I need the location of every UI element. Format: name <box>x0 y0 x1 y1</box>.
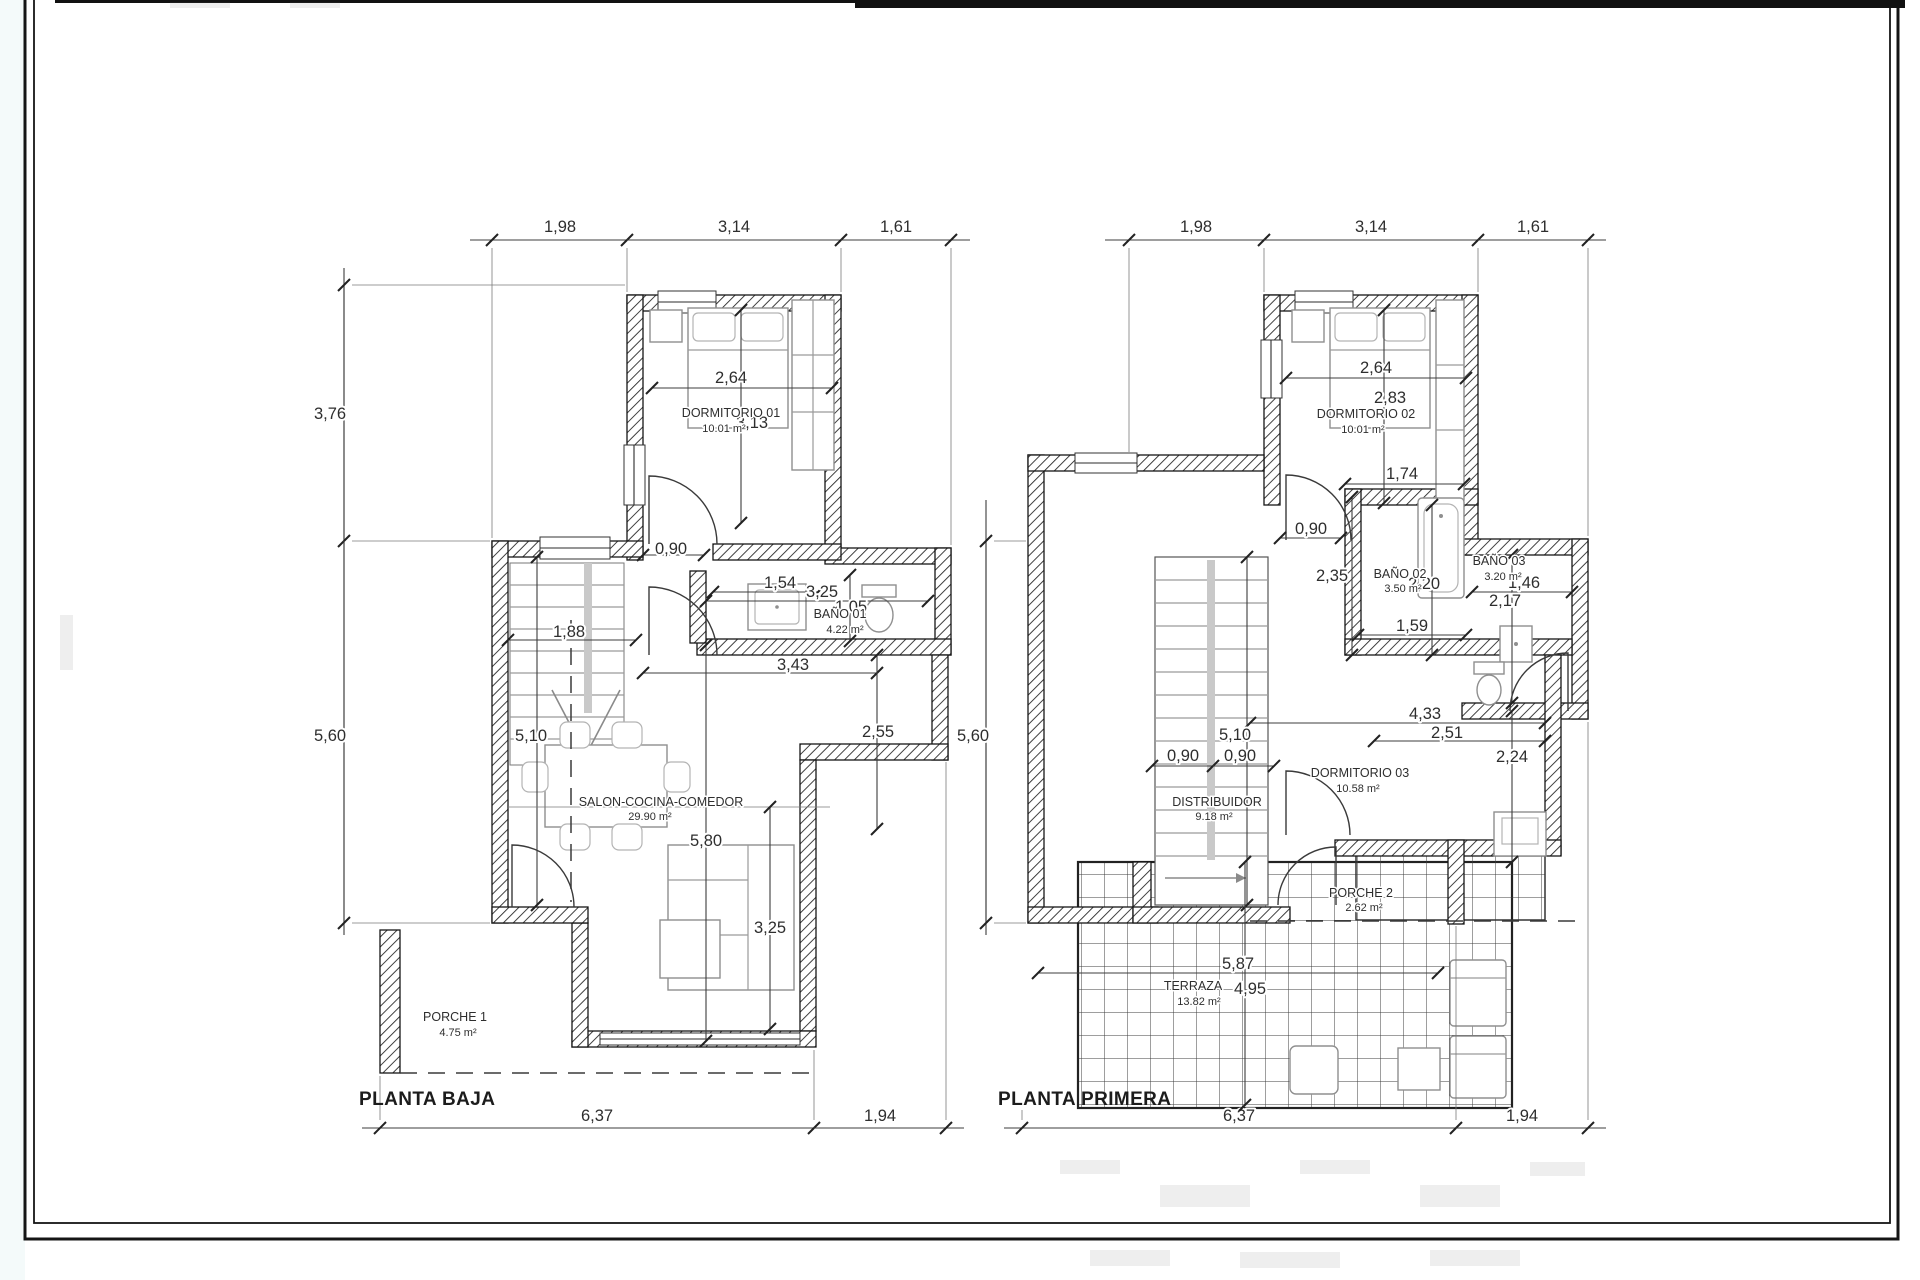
window-icon <box>1075 453 1137 473</box>
dim-label: 5,60 <box>314 727 346 745</box>
closet-icon <box>1436 300 1464 500</box>
table-icon <box>1398 1048 1440 1090</box>
lounger-icon <box>1450 960 1506 1026</box>
toilet-icon <box>1474 662 1504 705</box>
room-area: 10.01 m² <box>702 423 746 435</box>
window-icon <box>540 537 610 559</box>
lounger-icon <box>1450 1036 1506 1098</box>
floorplan-drawing: 1,98 3,14 1,61 3,76 5,60 6,37 1,94 <box>0 0 1920 1280</box>
room-name: BAÑO 03 <box>1473 554 1526 568</box>
room-area: 10.58 m² <box>1336 783 1380 795</box>
window-icon <box>624 445 645 505</box>
dim-label: 2,64 <box>715 369 747 387</box>
room-name: DORMITORIO 01 <box>682 406 780 420</box>
dim-label: 2,51 <box>1431 724 1463 742</box>
dim-label: 4,95 <box>1234 980 1266 998</box>
dim-label: 1,54 <box>764 574 796 592</box>
dim-label: 3,25 <box>754 919 786 937</box>
room-area: 29.90 m² <box>628 811 672 823</box>
room-name: DORMITORIO 02 <box>1317 407 1415 421</box>
dim-label: 5,10 <box>515 727 547 745</box>
sheet-border-frame <box>25 0 1905 1239</box>
chair-icon <box>1290 1046 1338 1094</box>
room-area: 3.20 m² <box>1484 571 1522 583</box>
floorplan-sheet: 1,98 3,14 1,61 3,76 5,60 6,37 1,94 <box>0 0 1920 1280</box>
dim-label: 1,61 <box>1517 218 1549 236</box>
dim-label: 1,94 <box>864 1107 896 1125</box>
dim-label: 5,80 <box>690 832 722 850</box>
toilet-icon <box>862 585 896 632</box>
room-name: BAÑO 01 <box>814 607 867 621</box>
dim-label: 3,76 <box>314 405 346 423</box>
dim-label: 5,10 <box>1219 726 1251 744</box>
dim-label: 2,24 <box>1496 748 1528 766</box>
room-name: PORCHE 2 <box>1329 886 1393 900</box>
room-area: 2.62 m² <box>1345 902 1383 914</box>
sink-icon <box>1500 626 1532 662</box>
door-arc <box>649 476 717 544</box>
closet-icon <box>792 300 834 470</box>
dim-label: 3,43 <box>777 656 809 674</box>
door-arc <box>1286 771 1350 835</box>
room-area: 10.01 m² <box>1341 424 1385 436</box>
room-name: DORMITORIO 03 <box>1311 766 1409 780</box>
window-icon <box>1261 340 1282 398</box>
dim-label: 0,90 <box>1224 747 1256 765</box>
dim-label: 3,14 <box>718 218 750 236</box>
room-name: DISTRIBUIDOR <box>1172 795 1262 809</box>
plan-title: PLANTA PRIMERA <box>998 1089 1171 1110</box>
dim-label: 1,94 <box>1506 1107 1538 1125</box>
door-arc <box>512 845 574 907</box>
dim-label: 1,88 <box>553 623 585 641</box>
dim-label: 3,14 <box>1355 218 1387 236</box>
dim-label: 6,37 <box>581 1107 613 1125</box>
room-name: TERRAZA <box>1164 979 1223 993</box>
dim-label: 2,55 <box>862 723 894 741</box>
sofa-icon <box>660 845 794 990</box>
plan-planta-baja: 1,98 3,14 1,61 3,76 5,60 6,37 1,94 <box>314 218 970 1128</box>
dim-label: 2,35 <box>1316 567 1348 585</box>
dim-label: 2,64 <box>1360 359 1392 377</box>
nightstand-icon <box>1292 310 1324 342</box>
room-name: PORCHE 1 <box>423 1010 487 1024</box>
dim-label: 4,33 <box>1409 705 1441 723</box>
room-name: SALON-COCINA-COMEDOR <box>579 795 744 809</box>
room-area: 13.82 m² <box>1177 996 1221 1008</box>
room-name: BAÑO 02 <box>1374 567 1427 581</box>
top-border-bar <box>855 0 1905 8</box>
room-area: 9.18 m² <box>1195 811 1233 823</box>
dim-label: 2,17 <box>1489 592 1521 610</box>
nightstand-icon <box>650 310 682 342</box>
dim-label: 1,74 <box>1386 465 1418 483</box>
room-area: 3.50 m² <box>1384 583 1422 595</box>
dim-label: 1,98 <box>1180 218 1212 236</box>
plan-planta-primera: 1,98 3,14 1,61 5,60 6,37 1,94 <box>957 218 1606 1128</box>
dim-label: 2,83 <box>1374 389 1406 407</box>
dim-label: 0,90 <box>655 540 687 558</box>
dim-label: 6,37 <box>1223 1107 1255 1125</box>
dim-label: 3,25 <box>806 583 838 601</box>
plan-title: PLANTA BAJA <box>359 1089 495 1110</box>
dim-label: 0,90 <box>1167 747 1199 765</box>
window-icon <box>600 1033 800 1045</box>
room-area: 4.22 m² <box>826 624 864 636</box>
dim-label: 1,98 <box>544 218 576 236</box>
page-margin <box>0 0 25 1280</box>
room-area: 4.75 m² <box>439 1027 477 1039</box>
desk-icon <box>1494 812 1546 856</box>
dim-label: 0,90 <box>1295 520 1327 538</box>
dim-label: 5,60 <box>957 727 989 745</box>
dim-label: 1,59 <box>1396 617 1428 635</box>
dim-label: 1,61 <box>880 218 912 236</box>
dim-label: 5,87 <box>1222 955 1254 973</box>
